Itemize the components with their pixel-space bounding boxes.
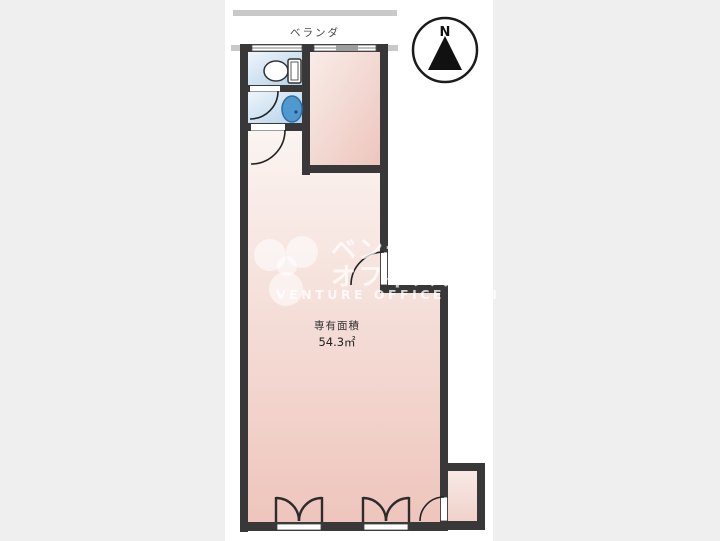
floor-plan-page: ベランダ N: [0, 0, 720, 541]
railing-stub-right: [388, 45, 398, 51]
closet-floor: [448, 471, 477, 521]
watermark-en-line: VENTURE OFFICE NAVI: [276, 287, 500, 302]
toilet-doorway: [250, 86, 280, 92]
floor-plan-canvas: ベランダ N: [0, 0, 720, 541]
window-right-sash: [336, 45, 358, 51]
balcony-label: ベランダ: [290, 26, 340, 39]
double-door-threshold-right: [364, 524, 408, 530]
area-value: 54.3㎡: [318, 335, 356, 349]
wall-service-room-bottom: [302, 165, 388, 173]
watermark-jp-line1: ベンチャー: [331, 235, 466, 264]
closet-door-leaf: [441, 497, 448, 521]
watermark: ベンチャー オフィスナビ VENTURE OFFICE NAVI: [254, 235, 500, 306]
area-label: 専有面積: [314, 319, 360, 332]
service-room-floor: [310, 52, 380, 165]
wall-left: [240, 44, 248, 532]
double-door-threshold-left: [277, 524, 321, 530]
wall-bottom: [240, 522, 448, 531]
balcony-railing: [233, 10, 397, 16]
wall-right-lower: [440, 293, 448, 531]
railing-stub-left: [231, 45, 240, 51]
wall-closet-right: [477, 463, 485, 529]
washroom-doorway: [251, 124, 285, 131]
compass-icon: N: [413, 18, 477, 82]
wall-closet-bottom: [440, 521, 485, 530]
sink-icon: [282, 96, 302, 122]
toilet-icon: [264, 59, 301, 83]
windows: [231, 45, 398, 51]
wall-wet-divider: [302, 44, 310, 175]
